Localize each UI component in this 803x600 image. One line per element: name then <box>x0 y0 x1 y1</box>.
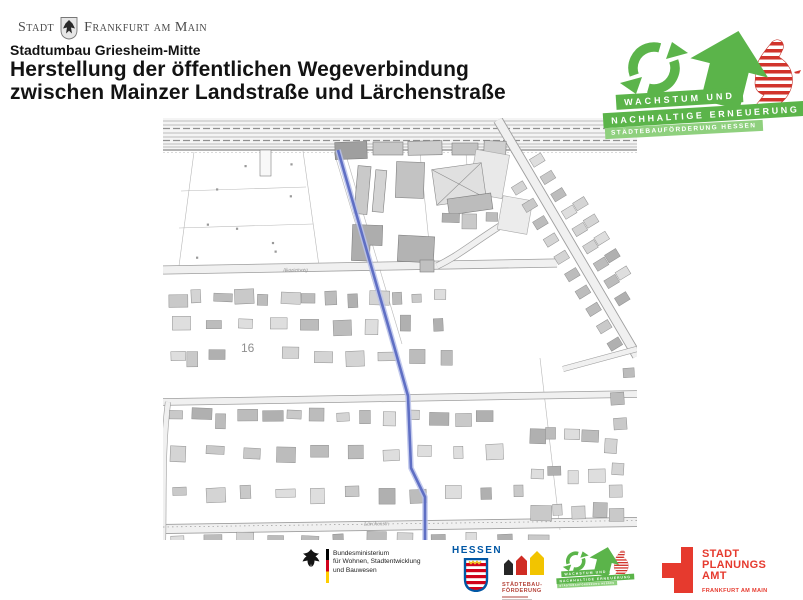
project-subtitle: Stadtumbau Griesheim-Mitte <box>10 42 201 58</box>
street-label-bottom: Lärchenstr. <box>363 521 389 527</box>
parcel-mark <box>236 228 238 230</box>
building <box>311 445 329 457</box>
building <box>431 534 445 540</box>
parcel-mark <box>290 195 292 197</box>
building <box>214 293 233 302</box>
map-buildings <box>169 153 635 540</box>
building <box>173 487 187 495</box>
hessen-state-logo: HESSEN <box>452 545 500 597</box>
building <box>588 469 605 483</box>
plan-poster: Stadt Frankfurt am Main Stadtumbau Gries… <box>0 0 803 600</box>
site-plan-map: Akazienweg Lärchenstr. 16 <box>163 118 637 540</box>
building <box>360 410 371 423</box>
ministry-line1: Bundesministerium <box>333 550 420 558</box>
wachstum-logo-small-inner: WACHSTUM UND NACHHALTIGE ERNEUERUNG STÄD… <box>556 546 632 589</box>
building <box>367 531 387 540</box>
building <box>456 413 472 426</box>
building <box>243 448 260 459</box>
building <box>281 292 301 304</box>
building <box>379 488 395 504</box>
wachstum-logo-large: WACHSTUM UND NACHHALTIGE ERNEUERUNG STÄD… <box>602 28 802 140</box>
building <box>546 427 556 439</box>
building <box>543 233 559 247</box>
building <box>169 411 182 419</box>
ministry-line2: für Wohnen, Stadtentwicklung <box>333 558 420 566</box>
building <box>454 446 464 458</box>
building <box>171 536 184 540</box>
title-line1: Herstellung der öffentlichen Wegeverbind… <box>10 59 506 82</box>
city-logo-name: Frankfurt am Main <box>84 20 207 36</box>
building <box>257 294 268 305</box>
building <box>172 316 190 330</box>
building <box>531 469 544 479</box>
street-label-mid: Akazienweg <box>282 267 308 273</box>
building <box>309 408 324 421</box>
building <box>276 489 296 498</box>
building <box>270 318 287 329</box>
bund-ministry-logo: Bundesministerium für Wohnen, Stadtentwi… <box>300 548 420 583</box>
ministry-name: Bundesministerium für Wohnen, Stadtentwi… <box>333 548 420 575</box>
building <box>429 412 449 425</box>
building <box>187 352 198 367</box>
building <box>596 319 612 333</box>
building <box>481 488 492 500</box>
building <box>548 466 561 475</box>
building <box>365 320 378 335</box>
building <box>400 315 410 331</box>
parcel-mark <box>272 242 274 244</box>
building <box>268 535 284 540</box>
building <box>192 408 212 420</box>
building <box>383 450 400 461</box>
building <box>240 485 251 499</box>
recycle-arrows-icon <box>563 551 589 571</box>
building <box>310 488 324 504</box>
building <box>345 486 359 497</box>
building <box>530 429 546 444</box>
building <box>346 351 365 367</box>
building <box>234 289 254 304</box>
building <box>301 536 319 540</box>
building <box>206 445 224 454</box>
building <box>582 430 599 442</box>
recycle-arrows-icon <box>620 41 688 95</box>
map-canvas: Akazienweg Lärchenstr. 16 <box>163 118 637 540</box>
building <box>169 295 188 308</box>
city-logo-stadt: Stadt <box>18 20 54 36</box>
building <box>433 318 443 331</box>
building <box>613 418 627 430</box>
hessen-coat-of-arms-icon <box>463 558 489 592</box>
building <box>497 534 512 540</box>
building <box>215 414 225 429</box>
building <box>609 508 624 521</box>
building <box>442 213 460 223</box>
building <box>531 505 552 521</box>
building <box>392 292 402 304</box>
building <box>514 485 523 497</box>
building <box>476 411 493 422</box>
building <box>575 285 591 299</box>
building <box>204 535 222 540</box>
title-line2: zwischen Mainzer Landstraße und Lärchens… <box>10 82 506 105</box>
building <box>348 294 358 308</box>
parcel-mark <box>216 188 218 190</box>
building <box>170 446 186 462</box>
building <box>486 444 504 460</box>
stadtplanungsamt-logo: STADT PLANUNGS AMT FRANKFURT AM MAIN <box>662 547 767 597</box>
building <box>383 412 396 426</box>
parcel-mark <box>290 163 292 165</box>
hessen-wordmark: HESSEN <box>452 545 500 556</box>
funding-houses-icon <box>502 551 546 575</box>
parcel-mark <box>207 224 209 226</box>
building <box>325 291 337 305</box>
parcel-mark <box>244 165 246 167</box>
building <box>445 485 461 498</box>
building <box>171 351 186 361</box>
parcel-mark <box>275 251 277 253</box>
plan-city-name: FRANKFURT AM MAIN <box>702 586 767 597</box>
building <box>604 439 617 454</box>
building <box>511 181 527 195</box>
ministry-line3: und Bauwesen <box>333 567 420 575</box>
federal-eagle-icon <box>300 548 322 568</box>
building <box>410 349 425 363</box>
planungsamt-name: STADT PLANUNGS AMT FRANKFURT AM MAIN <box>702 547 767 597</box>
building <box>528 535 549 540</box>
plan-line3: AMT <box>702 571 767 582</box>
german-flag-bar <box>326 549 329 583</box>
frankfurt-eagle-icon <box>59 16 79 40</box>
building <box>564 267 580 281</box>
building <box>314 351 332 363</box>
building <box>540 170 556 184</box>
building <box>263 410 284 421</box>
building <box>191 289 201 302</box>
parcel-marks <box>196 163 293 259</box>
building <box>348 445 363 459</box>
building <box>593 502 608 517</box>
building <box>206 488 226 503</box>
building <box>333 320 352 336</box>
building <box>462 214 477 229</box>
building <box>282 347 299 359</box>
frankfurt-city-logo: Stadt Frankfurt am Main <box>18 16 207 40</box>
funding-line2: FÖRDERUNG <box>502 588 548 594</box>
building <box>607 337 623 351</box>
staedtebaufoerderung-logo: STÄDTEBAU- FÖRDERUNG <box>502 551 548 600</box>
building <box>418 445 432 456</box>
building <box>397 533 413 540</box>
parcel-mark <box>196 257 198 259</box>
planungsamt-glyph-icon <box>662 547 694 593</box>
building <box>623 368 635 378</box>
block-number-label: 16 <box>241 341 255 355</box>
building <box>572 506 586 519</box>
building <box>276 447 295 463</box>
building <box>301 294 315 304</box>
building <box>333 534 344 540</box>
building <box>238 409 258 421</box>
building <box>287 410 302 419</box>
building <box>209 350 225 360</box>
page-title: Herstellung der öffentlichen Wegeverbind… <box>10 59 506 104</box>
building <box>441 350 452 365</box>
building <box>434 290 446 300</box>
building <box>568 471 578 484</box>
building <box>486 213 498 222</box>
building <box>609 485 622 498</box>
building <box>533 215 549 229</box>
building <box>610 392 624 405</box>
building <box>529 153 545 167</box>
funding-label: STÄDTEBAU- FÖRDERUNG <box>502 582 548 595</box>
building <box>553 504 563 515</box>
building <box>612 463 624 475</box>
building <box>300 319 318 330</box>
building <box>337 413 350 422</box>
building <box>238 319 252 329</box>
map-landmark-buildings <box>260 141 533 272</box>
building <box>614 292 630 306</box>
building <box>466 532 477 540</box>
funding-fineprint-line <box>502 596 528 597</box>
building <box>564 429 580 440</box>
building <box>237 532 254 540</box>
building <box>586 302 602 316</box>
building <box>206 320 221 328</box>
building <box>412 294 422 302</box>
wachstum-logo-small: WACHSTUM UND NACHHALTIGE ERNEUERUNG STÄD… <box>556 546 636 591</box>
building <box>551 188 567 202</box>
